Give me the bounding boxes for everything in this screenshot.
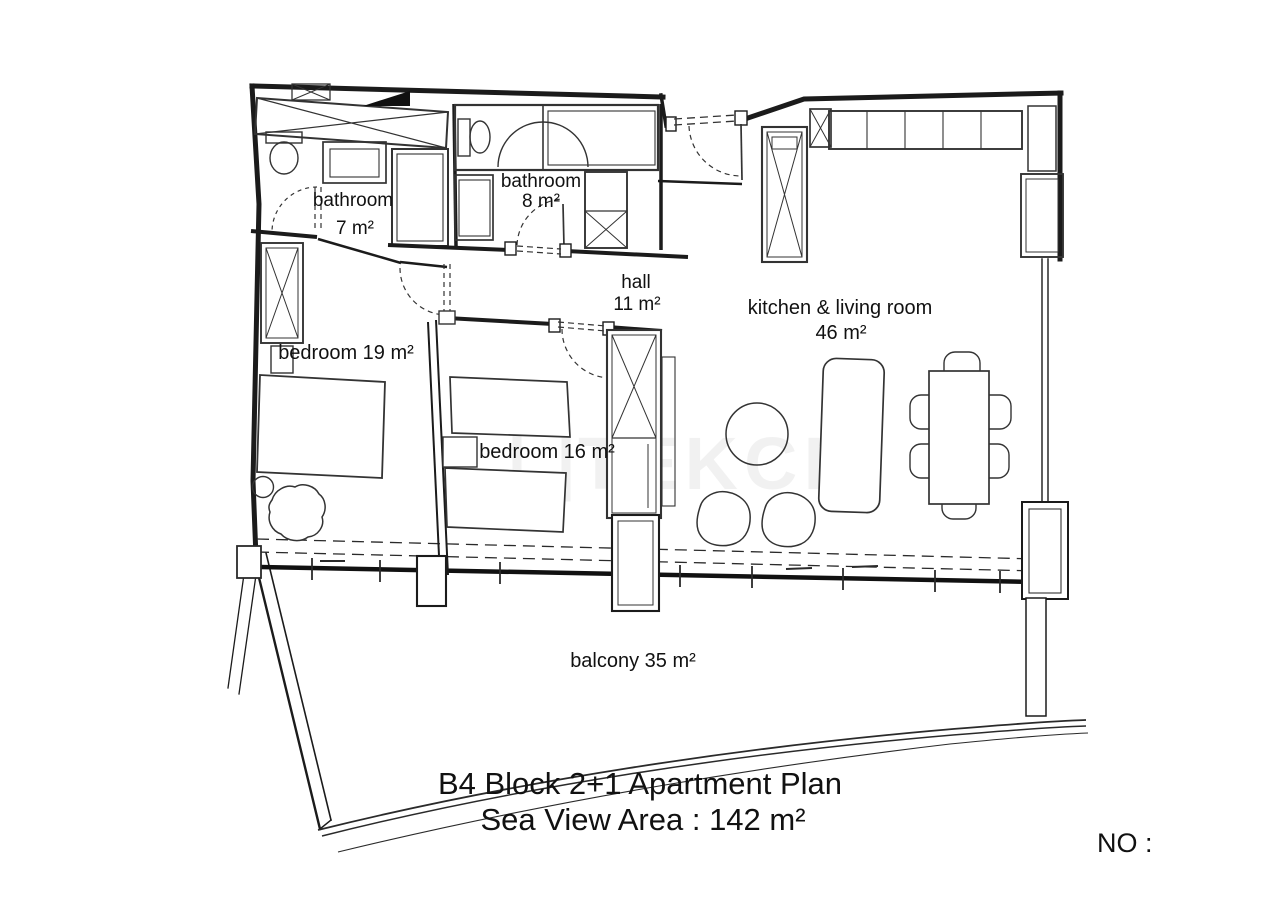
bedroom1-label: bedroom 19 m² <box>278 342 414 364</box>
kitchen-group <box>810 106 1063 257</box>
toilet-icon <box>458 119 490 156</box>
armchair-icon <box>697 492 750 546</box>
bathroom1-group <box>251 84 448 343</box>
floor-plan-drawing: TEKCE <box>0 0 1280 904</box>
bedroom2-door <box>562 329 611 378</box>
bathroom1-area: 7 m² <box>336 218 374 239</box>
kitchen-living-label: kitchen & living room <box>748 297 933 319</box>
bedroom1-door <box>400 262 450 316</box>
plant-icon <box>269 485 325 541</box>
kitchen-living-area: 46 m² <box>815 322 866 344</box>
single-bed-icon <box>445 468 566 532</box>
bedroom1-group <box>253 262 451 541</box>
dining-table-icon <box>929 371 989 504</box>
bedroom2-label: bedroom 16 m² <box>479 441 615 463</box>
tall-cabinet-icon <box>1021 106 1063 257</box>
plan-subtitle: Sea View Area : 142 m² <box>480 802 805 837</box>
single-bed-icon <box>450 377 570 437</box>
washbasin-icon <box>323 142 386 183</box>
hall-area: 11 m² <box>613 294 660 315</box>
bathroom2-area: 8 m² <box>522 191 560 212</box>
column-hatch-icon <box>810 109 831 147</box>
toilet-icon <box>266 132 302 174</box>
double-bed-icon <box>257 375 385 478</box>
hall-label: hall <box>621 272 651 293</box>
plan-title: B4 Block 2+1 Apartment Plan <box>438 766 842 801</box>
balcony-label: balcony 35 m² <box>570 650 696 672</box>
wardrobe-icon <box>261 243 303 343</box>
entry-shaft-icon <box>762 127 807 262</box>
sofa-icon <box>818 358 884 513</box>
bathroom1-label: bathroom <box>313 190 393 211</box>
floor-plan-canvas: TEKCE <box>0 0 1280 904</box>
shower-icon <box>392 149 448 246</box>
kitchen-counter-icon <box>829 111 1022 149</box>
nightstand-icon <box>443 437 477 467</box>
hall-group <box>388 111 807 378</box>
bathroom2-label: bathroom <box>501 171 581 192</box>
plan-number-label: NO : <box>1097 828 1153 858</box>
wardrobe-column-icon <box>607 330 661 518</box>
shaft-hatch-icon <box>585 172 627 248</box>
footer: B4 Block 2+1 Apartment Plan Sea View Are… <box>438 766 1153 858</box>
entrance-door <box>666 111 747 180</box>
armchair-icon <box>762 493 815 547</box>
washbasin-icon <box>455 175 493 240</box>
north-mark-icon <box>363 91 410 106</box>
